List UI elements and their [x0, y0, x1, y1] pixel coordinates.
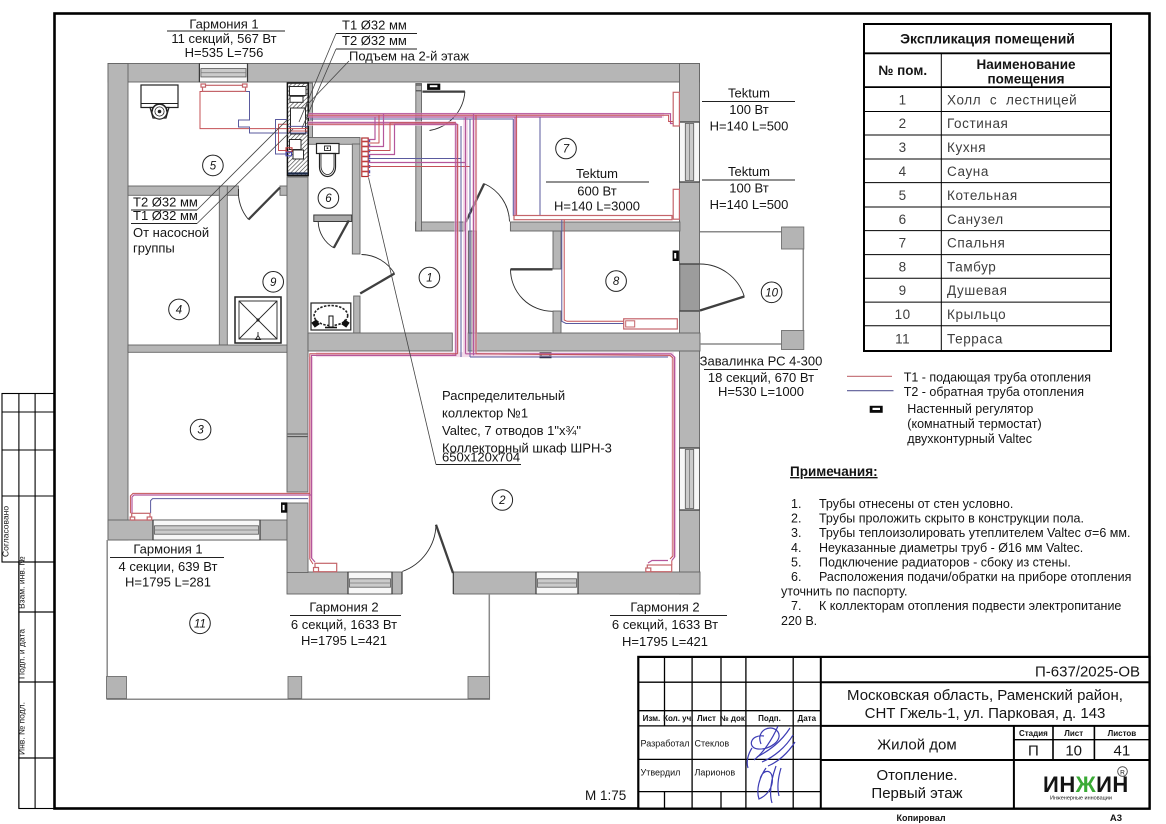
svg-text:группы: группы [133, 241, 175, 256]
svg-text:Экспликация помещений: Экспликация помещений [900, 31, 1075, 47]
svg-text:3: 3 [899, 140, 907, 155]
svg-text:11 секций, 567 Вт: 11 секций, 567 Вт [171, 31, 276, 46]
svg-text:уточнить по паспорту.: уточнить по паспорту. [781, 585, 908, 599]
svg-text:Московская область, Раменский: Московская область, Раменский район, [847, 687, 1123, 704]
svg-text:41: 41 [1114, 743, 1131, 760]
svg-text:5: 5 [899, 188, 907, 203]
svg-text:5.: 5. [791, 555, 801, 569]
svg-text:(комнатный термостат): (комнатный термостат) [907, 417, 1041, 431]
svg-text:Лист: Лист [1064, 729, 1083, 738]
svg-text:Лист: Лист [697, 714, 716, 723]
svg-text:Неуказанные диаметры труб - Ø1: Неуказанные диаметры труб - Ø16 мм Valte… [819, 541, 1083, 555]
svg-text:600 Вт: 600 Вт [577, 184, 617, 199]
svg-text:СНТ Гжель-1, ул. Парковая, д.: СНТ Гжель-1, ул. Парковая, д. 143 [865, 705, 1106, 722]
svg-text:Стеклов: Стеклов [695, 739, 730, 749]
svg-text:Наименование: Наименование [976, 57, 1076, 72]
svg-text:Стадия: Стадия [1019, 729, 1048, 738]
svg-text:Спальня: Спальня [947, 236, 1005, 251]
svg-text:Душевая: Душевая [947, 283, 1008, 298]
svg-text:К коллекторам отопления подвес: К коллекторам отопления подвести электро… [819, 599, 1121, 613]
svg-text:№ док.: № док. [720, 714, 747, 723]
svg-text:3.: 3. [791, 526, 801, 540]
svg-text:Дата: Дата [798, 714, 817, 723]
svg-text:Жилой дом: Жилой дом [877, 737, 956, 754]
svg-text:Трубы теплоизолировать утеплит: Трубы теплоизолировать утеплителем Valte… [819, 526, 1130, 540]
svg-text:Инв. № подл.: Инв. № подл. [17, 702, 27, 755]
svg-text:2.: 2. [791, 512, 801, 526]
svg-text:4.: 4. [791, 541, 801, 555]
svg-text:Завалинка РС 4-300: Завалинка РС 4-300 [700, 354, 823, 369]
svg-text:1: 1 [426, 273, 432, 285]
svg-text:Подключение радиаторов - сбоку: Подключение радиаторов - сбоку из стены. [819, 555, 1071, 569]
svg-text:H=1795 L=421: H=1795 L=421 [622, 634, 708, 649]
svg-text:9: 9 [270, 277, 277, 289]
svg-text:1: 1 [899, 92, 907, 107]
svg-text:Утвердил: Утвердил [641, 768, 681, 778]
svg-text:6: 6 [899, 212, 907, 227]
svg-text:4 секции, 639 Вт: 4 секции, 639 Вт [119, 559, 218, 574]
svg-text:От насосной: От насосной [133, 225, 209, 240]
svg-text:Сауна: Сауна [947, 164, 989, 179]
svg-text:8: 8 [899, 259, 907, 274]
svg-text:ИНЖИН: ИНЖИН [1043, 772, 1129, 797]
svg-text:Т2 - обратная труба отопления: Т2 - обратная труба отопления [904, 385, 1084, 399]
svg-text:двухконтурный Valtec: двухконтурный Valtec [907, 432, 1032, 446]
svg-text:Ларионов: Ларионов [695, 768, 736, 778]
svg-text:650х120х704: 650х120х704 [442, 450, 520, 465]
svg-text:8: 8 [613, 276, 620, 288]
svg-text:М 1:75: М 1:75 [585, 788, 626, 803]
svg-text:П: П [1028, 743, 1039, 760]
svg-text:100 Вт: 100 Вт [729, 102, 769, 117]
svg-text:Тамбур: Тамбур [947, 259, 996, 274]
svg-text:Tektum: Tektum [728, 164, 770, 179]
svg-text:Трубы проложить скрыто в конст: Трубы проложить скрыто в конструкции пол… [819, 512, 1084, 526]
svg-text:Гармония 2: Гармония 2 [309, 600, 378, 615]
svg-text:10: 10 [895, 307, 911, 322]
svg-text:Tektum: Tektum [728, 86, 770, 101]
svg-text:1.: 1. [791, 497, 801, 511]
svg-text:Изм.: Изм. [643, 714, 661, 723]
svg-text:H=530 L=1000: H=530 L=1000 [718, 384, 804, 399]
svg-text:Т1 - подающая труба отопления: Т1 - подающая труба отопления [904, 371, 1091, 385]
svg-text:6 секций, 1633 Вт: 6 секций, 1633 Вт [291, 617, 397, 632]
svg-text:Первый этаж: Первый этаж [871, 785, 962, 802]
svg-text:Листов: Листов [1108, 729, 1137, 738]
svg-text:H=140 L=3000: H=140 L=3000 [554, 199, 640, 214]
svg-text:№ пом.: № пом. [878, 63, 927, 78]
svg-text:H=1795 L=281: H=1795 L=281 [125, 575, 211, 590]
svg-text:Т1 Ø32 мм: Т1 Ø32 мм [342, 18, 407, 33]
svg-text:H=535 L=756: H=535 L=756 [185, 45, 264, 60]
svg-text:Tektum: Tektum [576, 166, 618, 181]
svg-text:Расположения подачи/обратки на: Расположения подачи/обратки на приборе о… [819, 570, 1131, 584]
svg-text:5: 5 [210, 160, 217, 172]
svg-text:10: 10 [1065, 743, 1082, 760]
svg-text:Т2 Ø32 мм: Т2 Ø32 мм [342, 33, 407, 48]
svg-text:Гостиная: Гостиная [947, 116, 1008, 131]
svg-text:7: 7 [899, 236, 907, 251]
svg-text:H=140 L=500: H=140 L=500 [710, 119, 789, 134]
svg-text:П-637/2025-ОВ: П-637/2025-ОВ [1035, 664, 1140, 681]
svg-text:Отопление.: Отопление. [876, 767, 957, 784]
svg-text:Холл с лестницей: Холл с лестницей [947, 92, 1077, 107]
svg-text:H=140 L=500: H=140 L=500 [710, 197, 789, 212]
svg-text:Распределительный: Распределительный [442, 388, 565, 403]
svg-text:Инженерные инновации: Инженерные инновации [1050, 796, 1112, 802]
svg-text:Настенный регулятор: Настенный регулятор [907, 402, 1033, 416]
svg-text:Санузел: Санузел [947, 212, 1004, 227]
svg-text:А3: А3 [1110, 813, 1122, 824]
svg-text:Взам. инв. №: Взам. инв. № [17, 556, 27, 609]
svg-text:Кухня: Кухня [947, 140, 986, 155]
svg-text:Трубы отнесены от стен условно: Трубы отнесены от стен условно. [819, 497, 1013, 511]
svg-text:коллектор №1: коллектор №1 [442, 406, 528, 421]
svg-text:Кол. уч.: Кол. уч. [663, 714, 693, 723]
svg-text:Котельная: Котельная [947, 188, 1018, 203]
svg-text:7.: 7. [791, 599, 801, 613]
svg-text:H=1795 L=421: H=1795 L=421 [301, 633, 387, 648]
svg-text:Гармония 1: Гармония 1 [133, 542, 202, 557]
svg-text:4: 4 [176, 304, 182, 316]
svg-text:помещения: помещения [988, 72, 1065, 87]
svg-text:Гармония 2: Гармония 2 [630, 600, 699, 615]
svg-text:6: 6 [325, 193, 332, 205]
svg-text:Т1 Ø32 мм: Т1 Ø32 мм [133, 208, 198, 223]
svg-text:Разработал: Разработал [641, 739, 690, 749]
svg-text:Копировал: Копировал [896, 813, 945, 823]
svg-text:6.: 6. [791, 570, 801, 584]
svg-text:Примечания:: Примечания: [790, 464, 878, 479]
svg-text:3: 3 [197, 425, 204, 437]
svg-text:10: 10 [765, 287, 778, 299]
svg-text:2: 2 [899, 116, 907, 131]
svg-text:2: 2 [498, 495, 506, 507]
svg-text:4: 4 [899, 164, 907, 179]
svg-text:Подп.: Подп. [758, 714, 781, 723]
svg-text:Подп. и дата: Подп. и дата [17, 629, 27, 679]
svg-text:Крыльцо: Крыльцо [947, 307, 1006, 322]
svg-text:18 секций, 670 Вт: 18 секций, 670 Вт [708, 370, 814, 385]
svg-text:R: R [1120, 769, 1125, 776]
svg-text:220 В.: 220 В. [781, 614, 817, 628]
svg-text:9: 9 [899, 283, 907, 298]
svg-text:11: 11 [194, 618, 206, 630]
svg-text:Valtec, 7 отводов 1"х¾": Valtec, 7 отводов 1"х¾" [442, 423, 581, 438]
svg-text:7: 7 [563, 144, 570, 156]
svg-text:Подъем на 2-й этаж: Подъем на 2-й этаж [349, 49, 469, 64]
svg-text:100 Вт: 100 Вт [729, 181, 769, 196]
svg-text:Терраса: Терраса [947, 331, 1003, 346]
svg-text:Согласовано: Согласовано [1, 506, 11, 557]
svg-text:6 секций, 1633 Вт: 6 секций, 1633 Вт [612, 617, 718, 632]
svg-text:Гармония 1: Гармония 1 [189, 17, 258, 32]
svg-text:11: 11 [895, 331, 910, 346]
